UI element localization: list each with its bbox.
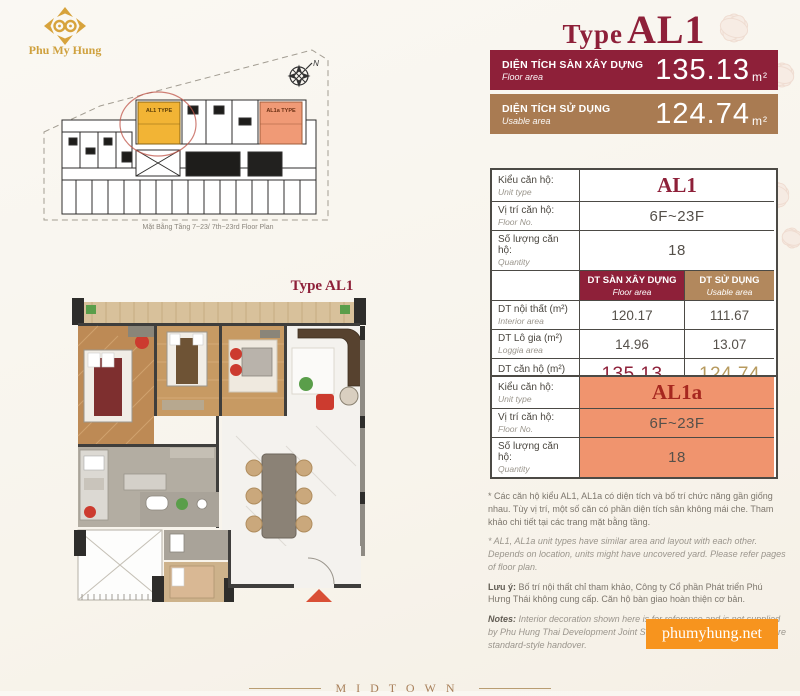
- dining-table: [262, 454, 296, 538]
- loggia-floor-value: 14.96: [615, 337, 649, 352]
- balcony-plant2-icon: [340, 305, 350, 314]
- desk-chair-1: [230, 348, 242, 360]
- footnote-en-1: * AL1, AL1a unit types have similar area…: [488, 535, 786, 573]
- bathroom: [140, 492, 219, 527]
- floor-area-unit: m²: [752, 71, 768, 85]
- site-plan-caption: Mặt Bằng Tầng 7~23/ 7th~23rd Floor Plan: [142, 222, 273, 231]
- entrance-terrace: [231, 546, 361, 602]
- al1a-unit-type-value: AL1a: [652, 380, 702, 405]
- unit-plan-title: Type AL1: [252, 278, 392, 295]
- unit-type-label: Kiểu căn hộ:: [498, 175, 573, 186]
- bath-plant-icon: [176, 498, 188, 510]
- al1a-unit-type-label: Kiểu căn hộ:: [498, 382, 573, 393]
- page-title: Type AL1: [490, 6, 778, 53]
- floor-area-value: 135.13: [655, 56, 750, 85]
- master-armchair: [135, 335, 149, 349]
- usable-area-unit: m²: [752, 115, 768, 129]
- website-url: phumyhung.net: [662, 625, 762, 643]
- apartment-floor-plan: [66, 296, 376, 614]
- footer-rule-right: [479, 688, 551, 689]
- bathtub: [146, 496, 168, 510]
- floor-area-banner: DIỆN TÍCH SÀN XÂY DỰNG Floor area 135.13…: [490, 50, 778, 90]
- usable-area-label-en: Usable area: [502, 116, 610, 126]
- al1a-floor-no-value: 6F~23F: [649, 415, 704, 432]
- title-prefix: Type: [562, 19, 623, 49]
- al1a-quantity-label: Số lượng căn hộ:: [498, 441, 573, 463]
- al1a-unit-label: AL1a TYPE: [266, 108, 296, 114]
- floor-no-value: 6F~23F: [649, 208, 704, 225]
- compass-north-label: N: [313, 59, 319, 68]
- col-header-floor-area: DT SÀN XÂY DỰNGFloor area: [580, 271, 685, 301]
- living-plant-icon: [299, 377, 313, 391]
- highlighted-unit-al1a: AL1a TYPE: [260, 102, 302, 144]
- usable-area-banner: DIỆN TÍCH SỬ DỤNG Usable area 124.74m²: [490, 94, 778, 134]
- area-banners: DIỆN TÍCH SÀN XÂY DỰNG Floor area 135.13…: [490, 50, 778, 138]
- study-room: [222, 326, 284, 416]
- floor-area-label-en: Floor area: [502, 72, 643, 82]
- interior-floor-value: 120.17: [611, 308, 652, 323]
- project-mark: MIDTOWN: [0, 681, 800, 696]
- desk: [242, 348, 272, 376]
- quantity-label: Số lượng căn hộ:: [498, 234, 573, 256]
- loggia-area-label: DT Lô gia (m²): [498, 333, 573, 344]
- unit-spec-table-al1: Kiểu căn hộ:Unit type AL1 Vị trí căn hộ:…: [490, 168, 778, 393]
- master-bedroom: [78, 326, 154, 444]
- usable-area-value: 124.74: [655, 100, 750, 129]
- brand-name: Phu My Hung: [29, 43, 102, 57]
- compass-icon: N: [289, 59, 319, 86]
- website-link[interactable]: phumyhung.net: [646, 619, 778, 649]
- highlighted-unit-al1: AL1 TYPE: [138, 102, 180, 144]
- loggia-usable-value: 13.07: [713, 337, 747, 352]
- maid-room: [164, 530, 234, 602]
- desk-chair-2: [230, 364, 242, 376]
- void-area: [74, 530, 164, 602]
- al1a-quantity-value: 18: [668, 449, 686, 466]
- lotus-emblem-icon: [44, 7, 86, 45]
- unit-area-label: DT căn hộ (m²): [498, 364, 573, 375]
- footer-rule-left: [249, 688, 321, 689]
- entrance-arrow-icon: [306, 589, 332, 602]
- unit-spec-table-al1a: Kiểu căn hộ:Unit type AL1a Vị trí căn hộ…: [490, 375, 778, 479]
- balcony-plant-icon: [86, 305, 96, 314]
- al1-unit-label: AL1 TYPE: [146, 108, 173, 114]
- floor-no-label: Vị trí căn hộ:: [498, 205, 573, 216]
- floor-site-plan: N: [36, 40, 340, 236]
- floor-area-label-vi: DIỆN TÍCH SÀN XÂY DỰNG: [502, 59, 643, 71]
- bedroom-2: [157, 326, 219, 416]
- al1a-floor-no-label: Vị trí căn hộ:: [498, 412, 573, 423]
- kitchen-island: [124, 474, 166, 490]
- project-name: MIDTOWN: [335, 681, 464, 696]
- col-header-usable-area: DT SỬ DỤNGUsable area: [685, 271, 774, 301]
- footnote-note-vi: Lưu ý: Bố trí nội thất chỉ tham khảo, Cô…: [488, 581, 786, 607]
- title-code: AL1: [627, 7, 706, 52]
- footnote-vi-1: * Các căn hộ kiểu AL1, AL1a có diện tích…: [488, 490, 786, 528]
- interior-area-label: DT nội thất (m²): [498, 304, 573, 315]
- usable-area-label-vi: DIỆN TÍCH SỬ DỤNG: [502, 103, 610, 115]
- unit-type-value: AL1: [657, 173, 697, 198]
- brand-logo: Phu My Hung: [10, 6, 120, 63]
- red-ottoman: [316, 394, 334, 410]
- interior-usable-value: 111.67: [710, 308, 749, 323]
- quantity-value: 18: [668, 242, 686, 259]
